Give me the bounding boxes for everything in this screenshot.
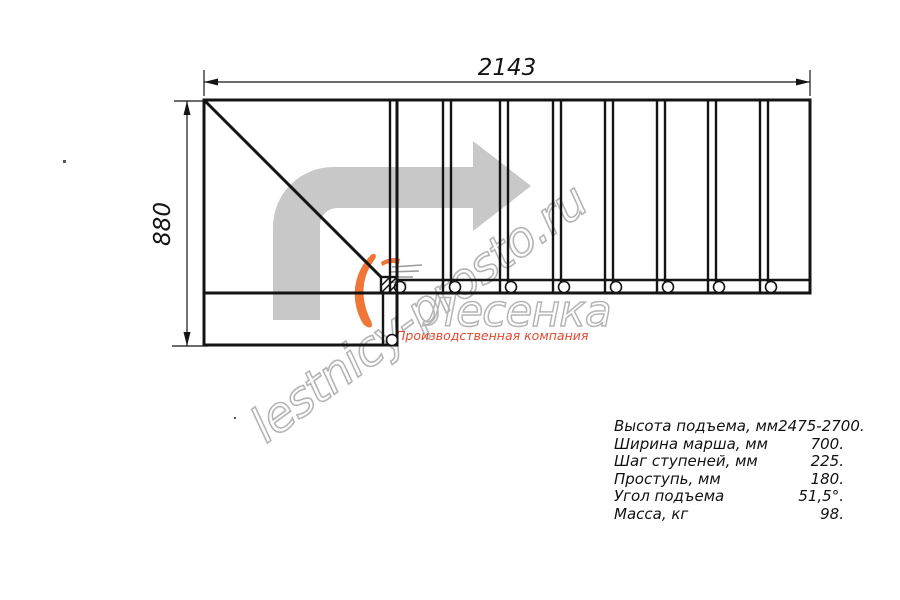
dimension-height-label: 880 — [150, 202, 176, 246]
stair-drawing-page: lestnicy-prosto.ru Лесенка Производствен… — [0, 0, 900, 600]
spec-row-step-pitch: Шаг ступеней, мм 225. — [614, 453, 844, 471]
spec-value: 98. — [820, 506, 844, 524]
spec-label: Шаг ступеней, мм — [614, 453, 758, 471]
specs-table: Высота подъема, мм 2475-2700. Ширина мар… — [614, 418, 844, 524]
dimension-width: 2143 — [204, 55, 810, 96]
dimension-width-label: 2143 — [478, 55, 537, 81]
spec-row-mass: Масса, кг 98. — [614, 506, 844, 524]
spec-label: Угол подъема — [614, 488, 724, 506]
spec-row-height: Высота подъема, мм 2475-2700. — [614, 418, 844, 436]
spec-row-angle: Угол подъема 51,5°. — [614, 488, 844, 506]
dust-speck — [234, 417, 236, 419]
spec-label: Проступь, мм — [614, 471, 721, 489]
spec-value: 225. — [811, 453, 844, 471]
dust-speck — [63, 160, 66, 163]
dimension-height: 880 — [150, 101, 208, 346]
spec-value: 51,5°. — [798, 488, 844, 506]
spec-value: 180. — [811, 471, 844, 489]
spec-label: Ширина марша, мм — [614, 436, 768, 454]
spec-label: Высота подъема, мм — [614, 418, 778, 436]
spec-row-march-width: Ширина марша, мм 700. — [614, 436, 844, 454]
brand-tagline-text: Производственная компания — [396, 328, 589, 343]
spec-label: Масса, кг — [614, 506, 688, 524]
spec-value: 2475-2700. — [778, 418, 865, 436]
spec-row-tread: Проступь, мм 180. — [614, 471, 844, 489]
spec-value: 700. — [811, 436, 844, 454]
